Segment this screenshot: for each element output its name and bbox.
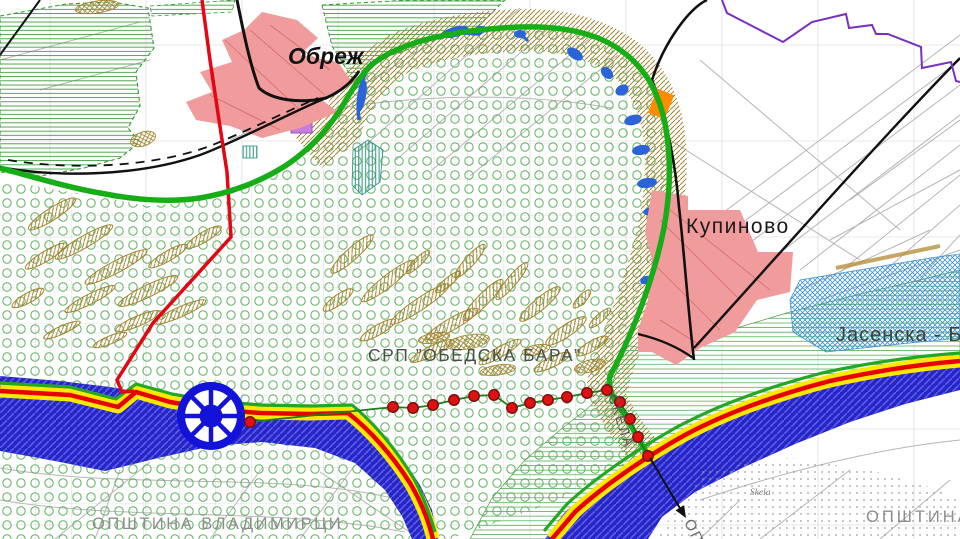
trail-dot: [245, 417, 255, 427]
trail-dot: [602, 385, 612, 395]
label-municipality-right: ОПШТИНА: [866, 508, 960, 526]
label-municipality-left: ОПШТИНА ВЛАДИМИРЦИ: [92, 515, 343, 533]
map-canvas[interactable]: Обреж Купиново СРП ”ОБЕДСКА БАРА” Јасенс…: [0, 0, 960, 539]
obedska-bara-map: Обреж Купиново СРП ”ОБЕДСКА БАРА” Јасенс…: [0, 0, 960, 539]
trail-dot: [408, 403, 418, 413]
ferry-wheel-symbol: [181, 386, 241, 446]
trail-dot: [543, 395, 553, 405]
trail-dot: [388, 402, 398, 412]
label-reserve: СРП ”ОБЕДСКА БАРА”: [368, 345, 581, 365]
trail-dot: [582, 388, 592, 398]
trail-dot: [449, 395, 459, 405]
trail-dot: [489, 390, 499, 400]
label-jasenska: Јасенска - Бе: [836, 324, 960, 346]
label-skela-village: Skela: [750, 488, 771, 498]
trail-dot: [562, 392, 572, 402]
trail-dot: [507, 403, 517, 413]
trail-dot: [525, 398, 535, 408]
teal-patch-small: [243, 146, 257, 158]
label-kupinovo: Купиново: [686, 215, 790, 238]
trail-dot: [428, 400, 438, 410]
trail-dot: [469, 391, 479, 401]
label-obrez: Обреж: [288, 43, 365, 69]
